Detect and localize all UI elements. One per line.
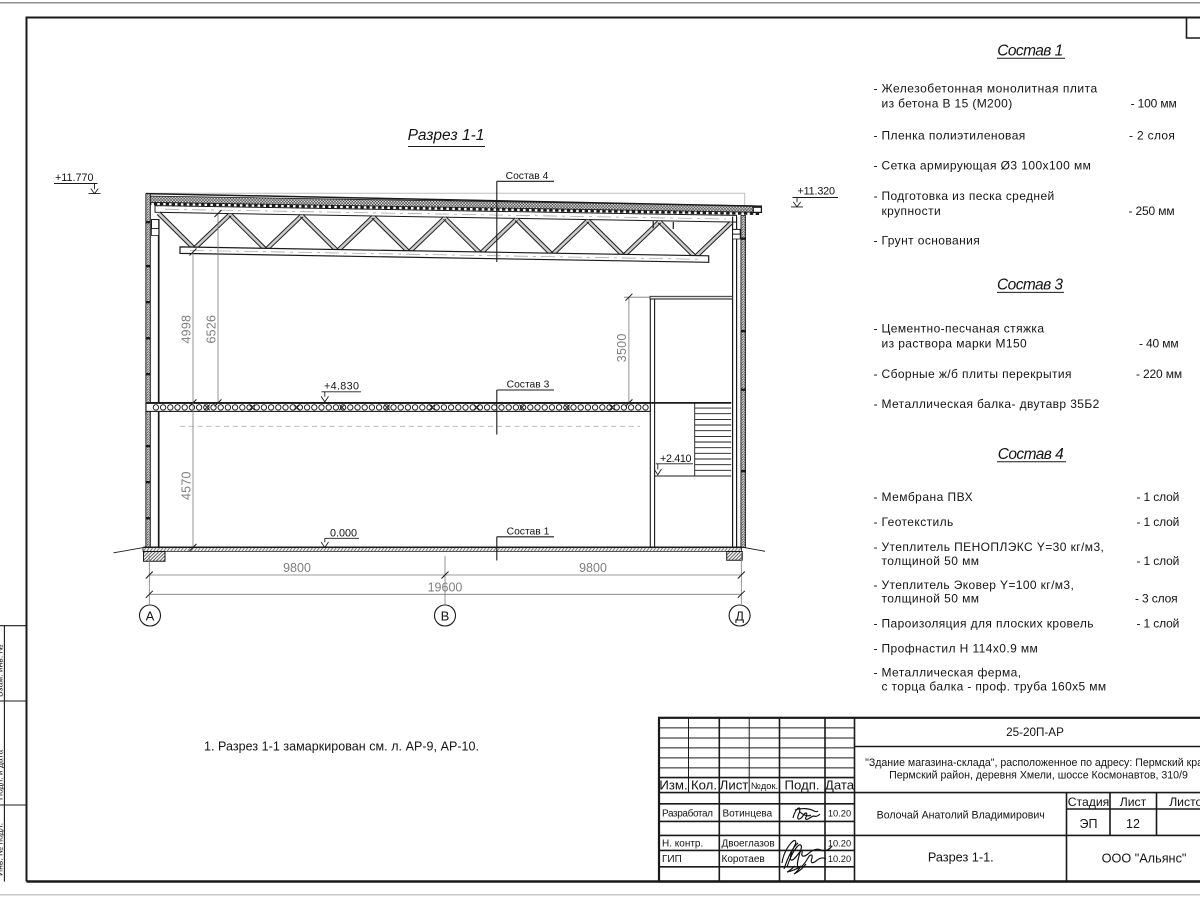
svg-text:-: - — [874, 490, 878, 504]
svg-text:ГИП: ГИП — [662, 854, 682, 865]
svg-text:крупности: крупности — [882, 204, 941, 218]
svg-text:+11.770: +11.770 — [55, 172, 94, 184]
svg-text:- 1 слой: - 1 слой — [1137, 515, 1180, 529]
svg-text:+2.410: +2.410 — [660, 453, 692, 465]
svg-text:Сборные ж/б плиты перекрытия: Сборные ж/б плиты перекрытия — [882, 367, 1072, 381]
svg-text:-: - — [874, 367, 878, 381]
svg-text:Д: Д — [735, 608, 744, 623]
svg-text:Разработал: Разработал — [662, 808, 713, 820]
svg-text:толщиной 50 мм: толщиной 50 мм — [882, 592, 980, 606]
svg-text:9800: 9800 — [283, 561, 311, 575]
svg-text:Разрез 1-1.: Разрез 1-1. — [928, 851, 994, 865]
svg-text:толщиной 50 мм: толщиной 50 мм — [882, 554, 980, 568]
svg-text:12: 12 — [1126, 817, 1140, 831]
svg-text:-: - — [874, 642, 878, 656]
svg-text:-: - — [874, 515, 878, 529]
svg-text:- 1 слой: - 1 слой — [1137, 617, 1180, 631]
svg-text:- 220 мм: - 220 мм — [1136, 367, 1182, 381]
svg-text:Стадия: Стадия — [1068, 795, 1110, 809]
svg-text:Состав 1: Состав 1 — [507, 527, 550, 538]
svg-text:+11.320: +11.320 — [798, 186, 836, 198]
svg-text:Пленка полиэтиленовая: Пленка полиэтиленовая — [882, 129, 1026, 143]
svg-text:Листов: Листов — [1169, 795, 1200, 809]
svg-text:Подп. и дата: Подп. и дата — [0, 750, 5, 800]
svg-text:-: - — [874, 129, 878, 143]
svg-text:с торца балка - проф. труба 16: с торца балка - проф. труба 160х5 мм — [882, 680, 1107, 694]
svg-text:Мембрана ПВХ: Мембрана ПВХ — [882, 490, 973, 504]
svg-text:Пароизоляция для плоских крове: Пароизоляция для плоских кровель — [882, 617, 1094, 631]
svg-text:Утеплитель ПЕНОПЛЭКС Y=30 кг/м: Утеплитель ПЕНОПЛЭКС Y=30 кг/м3, — [882, 540, 1104, 554]
svg-text:0.000: 0.000 — [330, 527, 357, 539]
svg-text:Взам. инв. №: Взам. инв. № — [0, 644, 5, 697]
svg-text:- 1 слой: - 1 слой — [1137, 554, 1180, 568]
svg-text:Грунт основания: Грунт основания — [882, 234, 980, 248]
svg-text:-: - — [874, 234, 878, 248]
svg-text:из бетона В 15 (М200): из бетона В 15 (М200) — [882, 97, 1013, 111]
svg-text:Состав 4: Состав 4 — [506, 171, 549, 182]
svg-text:ЭП: ЭП — [1080, 817, 1098, 831]
svg-text:А: А — [146, 608, 155, 623]
svg-text:10.20: 10.20 — [828, 809, 851, 819]
svg-text:- 3 слоя: - 3 слоя — [1135, 592, 1178, 606]
svg-text:Коротаев: Коротаев — [722, 854, 765, 865]
svg-text:№док.: №док. — [751, 781, 778, 791]
svg-text:-: - — [874, 189, 878, 203]
svg-text:Н. контр.: Н. контр. — [662, 838, 703, 849]
svg-text:10.20: 10.20 — [828, 854, 851, 864]
svg-text:-: - — [874, 397, 878, 411]
svg-text:-: - — [874, 159, 878, 173]
svg-text:Геотекстиль: Геотекстиль — [882, 515, 954, 529]
svg-text:Двоеглазов: Двоеглазов — [722, 838, 775, 849]
svg-text:Разрез 1-1: Разрез 1-1 — [408, 127, 485, 144]
svg-text:-: - — [874, 617, 878, 631]
svg-text:Цементно-песчаная стяжка: Цементно-песчаная стяжка — [882, 322, 1045, 336]
svg-text:-: - — [874, 666, 878, 680]
svg-text:- 2 слоя: - 2 слоя — [1129, 129, 1175, 143]
svg-text:ООО "Альянс": ООО "Альянс" — [1102, 852, 1187, 866]
svg-text:+4.830: +4.830 — [324, 381, 359, 393]
svg-text:- 40 мм: - 40 мм — [1139, 337, 1179, 351]
svg-text:- 100 мм: - 100 мм — [1131, 97, 1177, 111]
svg-text:Металлическая ферма,: Металлическая ферма, — [882, 666, 1022, 680]
svg-text:Утеплитель Эковер Y=100 кг/м3,: Утеплитель Эковер Y=100 кг/м3, — [882, 578, 1074, 592]
svg-text:- 1 слой: - 1 слой — [1137, 490, 1180, 504]
svg-text:Состав 3: Состав 3 — [507, 380, 550, 391]
svg-text:4998: 4998 — [180, 315, 194, 344]
svg-text:Лист: Лист — [720, 778, 749, 793]
svg-text:1. Разрез 1-1 замаркирован см.: 1. Разрез 1-1 замаркирован см. л. АР-9, … — [204, 740, 479, 754]
svg-text:6526: 6526 — [205, 315, 219, 344]
svg-text:Лист: Лист — [1120, 795, 1147, 809]
svg-text:Волочай Анатолий Владимирович: Волочай Анатолий Владимирович — [877, 810, 1045, 822]
svg-text:из раствора марки М150: из раствора марки М150 — [882, 337, 1028, 351]
svg-text:Инв. № подл.: Инв. № подл. — [0, 823, 5, 876]
svg-text:Подготовка из песка средней: Подготовка из песка средней — [882, 189, 1055, 203]
svg-text:Дата: Дата — [825, 778, 855, 793]
svg-text:"Здание магазина-склада", расп: "Здание магазина-склада", расположенное … — [865, 757, 1200, 769]
svg-text:-: - — [874, 540, 878, 554]
svg-text:Состав 4: Состав 4 — [998, 446, 1064, 463]
svg-text:Профнастил Н 114х0.9 мм: Профнастил Н 114х0.9 мм — [882, 642, 1038, 656]
svg-text:Подп.: Подп. — [784, 778, 819, 793]
svg-text:4570: 4570 — [180, 471, 194, 500]
svg-text:25-20П-АР: 25-20П-АР — [1006, 726, 1064, 739]
svg-text:-: - — [874, 322, 878, 336]
svg-text:Кол.: Кол. — [691, 778, 717, 793]
svg-text:Железобетонная монолитная пли: Железобетонная монолитная плита — [882, 82, 1098, 96]
svg-text:3500: 3500 — [615, 334, 629, 363]
svg-text:Вотинцева: Вотинцева — [723, 809, 773, 820]
svg-text:Изм.: Изм. — [659, 778, 687, 793]
svg-text:-: - — [874, 82, 878, 96]
svg-text:- 250 мм: - 250 мм — [1129, 204, 1175, 218]
svg-text:Пермский район, деревня Хмели,: Пермский район, деревня Хмели, шоссе Кос… — [889, 769, 1188, 781]
svg-text:19600: 19600 — [428, 580, 463, 594]
svg-text:Состав 3: Состав 3 — [997, 277, 1063, 294]
svg-text:9800: 9800 — [579, 561, 607, 575]
svg-text:-: - — [874, 578, 878, 592]
svg-text:Металлическая балка- двутавр 3: Металлическая балка- двутавр 35Б2 — [882, 397, 1100, 411]
svg-text:В: В — [441, 608, 450, 623]
svg-text:Сетка армирующая Ø3 100х100 мм: Сетка армирующая Ø3 100х100 мм — [882, 159, 1091, 173]
svg-text:Состав 1: Состав 1 — [997, 42, 1063, 59]
